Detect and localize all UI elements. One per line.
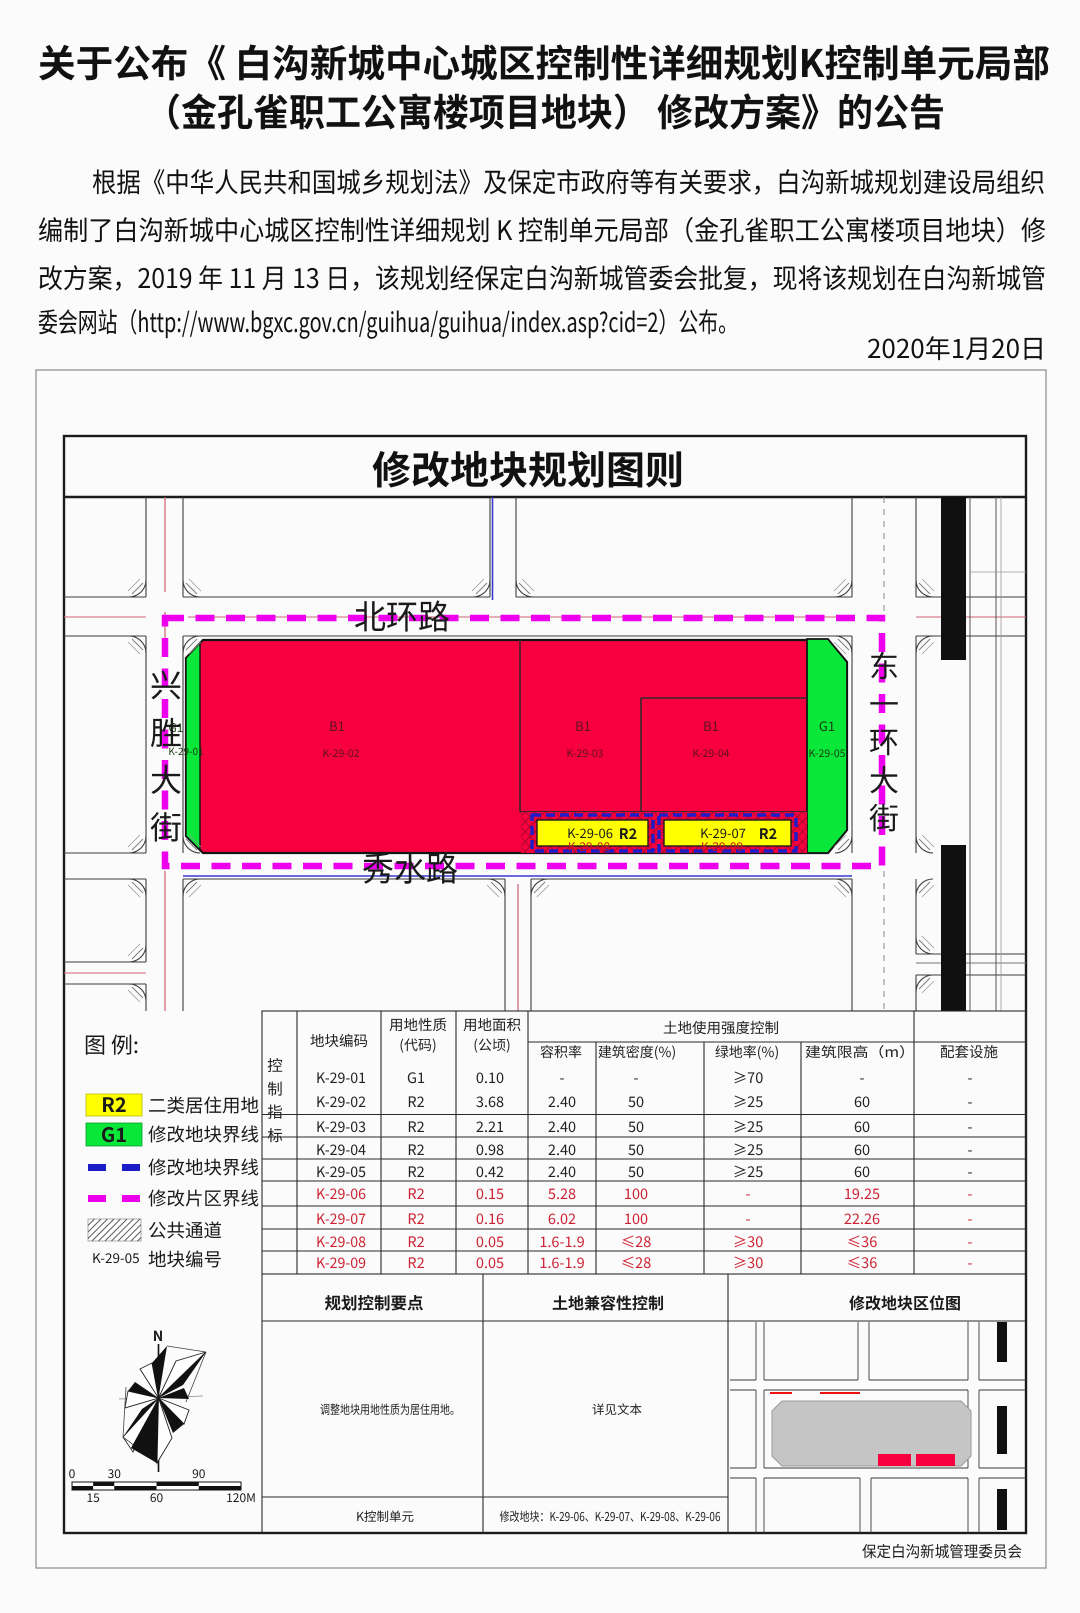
svg-text:K-29-05: K-29-05 [92,1247,140,1267]
svg-text:规划控制要点: 规划控制要点 [325,1290,424,1314]
svg-text:R2: R2 [407,1183,424,1204]
svg-text:N: N [153,1326,164,1346]
svg-text:建筑限高（m）: 建筑限高（m） [805,1042,915,1062]
svg-text:公共通道: 公共通道 [148,1217,222,1243]
svg-text:绿地率(%): 绿地率(%) [715,1042,779,1062]
svg-text:100: 100 [624,1208,648,1229]
svg-text:修改地块界线: 修改地块界线 [148,1154,259,1180]
svg-text:-: - [967,1067,972,1088]
svg-text:图 例:: 图 例: [84,1028,139,1060]
svg-text:K-29-08: K-29-08 [316,1231,366,1252]
svg-text:50: 50 [628,1139,644,1160]
svg-text:R2: R2 [101,1089,126,1118]
svg-text:（金孔雀职工公寓楼项目地块） 修改方案》的公告: （金孔雀职工公寓楼项目地块） 修改方案》的公告 [145,82,945,137]
svg-text:-: - [745,1208,750,1229]
svg-text:K-29-05: K-29-05 [316,1161,366,1182]
svg-text:50: 50 [628,1161,644,1182]
svg-text:R2: R2 [407,1161,424,1182]
svg-text:关于公布《 白沟新城中心城区控制性详细规划K控制单元局部: 关于公布《 白沟新城中心城区控制性详细规划K控制单元局部 [38,33,1050,88]
svg-text:-: - [967,1231,972,1252]
svg-text:≥25: ≥25 [733,1161,764,1182]
svg-text:0.42: 0.42 [476,1161,504,1182]
svg-text:120M: 120M [226,1489,256,1506]
svg-text:委会网站（http://www.bgxc.gov.cn/gu: 委会网站（http://www.bgxc.gov.cn/guihua/guihu… [38,301,738,340]
svg-text:2.40: 2.40 [548,1139,576,1160]
svg-text:K-29-09: K-29-09 [701,838,743,855]
svg-text:B1: B1 [329,716,345,735]
svg-text:地块编码: 地块编码 [310,1030,368,1051]
svg-text:K-29-05: K-29-05 [808,746,845,761]
svg-text:B1: B1 [575,716,591,735]
svg-text:≥25: ≥25 [733,1139,764,1160]
svg-text:0.15: 0.15 [476,1183,504,1204]
svg-text:-: - [633,1067,638,1088]
svg-text:(公顷): (公顷) [473,1035,510,1055]
svg-text:19.25: 19.25 [844,1183,880,1204]
svg-text:用地面积: 用地面积 [463,1014,521,1035]
svg-text:R2: R2 [407,1208,424,1229]
svg-text:≤36: ≤36 [847,1252,878,1273]
svg-text:R2: R2 [759,823,777,844]
svg-text:-: - [967,1252,972,1273]
svg-text:K-29-06: K-29-06 [316,1183,366,1204]
svg-text:街: 街 [869,794,899,838]
svg-text:G1: G1 [407,1067,425,1088]
svg-text:土地兼容性控制: 土地兼容性控制 [552,1290,664,1314]
svg-text:R2: R2 [407,1116,424,1137]
svg-text:保定白沟新城管理委员会: 保定白沟新城管理委员会 [862,1540,1022,1562]
svg-text:2020年1月20日: 2020年1月20日 [867,329,1046,366]
svg-text:配套设施: 配套设施 [940,1041,998,1062]
svg-text:K-29-02: K-29-02 [322,746,359,761]
svg-text:大: 大 [150,756,182,802]
svg-text:(代码): (代码) [399,1035,436,1055]
svg-text:0.98: 0.98 [476,1139,504,1160]
svg-text:15: 15 [86,1489,100,1506]
svg-text:-: - [559,1067,564,1088]
svg-text:0.16: 0.16 [476,1208,504,1229]
svg-text:22.26: 22.26 [844,1208,880,1229]
svg-text:容积率: 容积率 [540,1042,582,1062]
svg-text:R2: R2 [619,823,637,844]
svg-text:60: 60 [854,1161,870,1182]
svg-text:2.21: 2.21 [476,1116,504,1137]
svg-text:R2: R2 [407,1231,424,1252]
svg-text:≤28: ≤28 [621,1231,652,1252]
svg-text:6.02: 6.02 [548,1208,576,1229]
svg-text:K-29-09: K-29-09 [316,1252,366,1273]
svg-text:根据《中华人民共和国城乡规划法》及保定市政府等有关要求，白沟: 根据《中华人民共和国城乡规划法》及保定市政府等有关要求，白沟新城规划建设局组织 [92,161,1045,200]
svg-text:60: 60 [854,1139,870,1160]
svg-text:≥70: ≥70 [733,1067,764,1088]
svg-text:50: 50 [628,1091,644,1112]
svg-text:K-29-01: K-29-01 [316,1067,366,1088]
svg-text:用地性质: 用地性质 [389,1014,447,1035]
svg-text:≤36: ≤36 [847,1231,878,1252]
svg-text:详见文本: 详见文本 [592,1399,643,1418]
svg-text:K-29-04: K-29-04 [316,1139,366,1160]
svg-text:5.28: 5.28 [548,1183,576,1204]
svg-text:G1: G1 [101,1119,127,1148]
svg-text:-: - [967,1183,972,1204]
svg-text:60: 60 [854,1091,870,1112]
svg-text:胜: 胜 [150,708,182,754]
svg-text:G1: G1 [819,716,835,735]
svg-text:土地使用强度控制: 土地使用强度控制 [663,1017,779,1038]
svg-text:编制了白沟新城中心城区控制性详细规划 K 控制单元局部（金孔: 编制了白沟新城中心城区控制性详细规划 K 控制单元局部（金孔雀职工公寓楼项目地块… [38,209,1046,248]
svg-text:3.68: 3.68 [476,1091,504,1112]
svg-text:-: - [967,1116,972,1137]
svg-text:2.40: 2.40 [548,1161,576,1182]
svg-text:K-29-03: K-29-03 [316,1116,366,1137]
svg-text:0: 0 [69,1465,76,1482]
svg-text:90: 90 [192,1465,206,1482]
svg-text:0.10: 0.10 [476,1067,504,1088]
svg-text:B1: B1 [703,716,719,735]
svg-text:二类居住用地: 二类居住用地 [148,1092,259,1118]
svg-text:控: 控 [267,1054,283,1076]
svg-text:-: - [967,1161,972,1182]
svg-text:2.40: 2.40 [548,1116,576,1137]
svg-text:≤28: ≤28 [621,1252,652,1273]
svg-text:60: 60 [150,1489,164,1506]
svg-text:30: 30 [108,1465,122,1482]
svg-text:2.40: 2.40 [548,1091,576,1112]
svg-text:修改地块区位图: 修改地块区位图 [849,1290,961,1314]
svg-text:改方案，2019 年 11 月 13 日，该规划经保定白沟新: 改方案，2019 年 11 月 13 日，该规划经保定白沟新城管委会批复，现将该… [38,257,1046,296]
svg-text:-: - [967,1091,972,1112]
svg-text:制: 制 [267,1077,283,1099]
svg-text:100: 100 [624,1183,648,1204]
svg-text:-: - [745,1183,750,1204]
svg-text:北环路: 北环路 [354,590,450,639]
svg-text:兴: 兴 [150,661,182,707]
svg-text:-: - [859,1067,864,1088]
svg-text:0.05: 0.05 [476,1231,504,1252]
svg-text:≥30: ≥30 [733,1231,764,1252]
svg-text:0.05: 0.05 [476,1252,504,1273]
svg-text:-: - [967,1208,972,1229]
svg-text:K-29-04: K-29-04 [692,746,729,761]
svg-text:60: 60 [854,1116,870,1137]
svg-text:秀水路: 秀水路 [362,842,458,891]
svg-text:修改地块界线: 修改地块界线 [148,1121,259,1147]
svg-text:建筑密度(%): 建筑密度(%) [598,1042,676,1062]
svg-text:地块编号: 地块编号 [148,1246,222,1272]
svg-text:标: 标 [267,1124,283,1146]
svg-text:R2: R2 [407,1252,424,1273]
svg-text:50: 50 [628,1116,644,1137]
svg-text:K-29-07: K-29-07 [316,1208,366,1229]
svg-text:K-29-08: K-29-08 [568,838,611,855]
svg-text:R2: R2 [407,1139,424,1160]
svg-text:街: 街 [150,803,182,849]
svg-text:-: - [967,1139,972,1160]
svg-text:1.6-1.9: 1.6-1.9 [539,1252,584,1273]
svg-text:K控制单元: K控制单元 [356,1506,414,1525]
svg-text:K-29-03: K-29-03 [566,746,603,761]
svg-text:≥30: ≥30 [733,1252,764,1273]
svg-text:R2: R2 [407,1091,424,1112]
svg-text:K-29-02: K-29-02 [316,1091,366,1112]
svg-text:修改地块规划图则: 修改地块规划图则 [372,440,684,496]
svg-text:≥25: ≥25 [733,1116,764,1137]
svg-text:1.6-1.9: 1.6-1.9 [539,1231,584,1252]
svg-text:修改片区界线: 修改片区界线 [148,1185,259,1211]
svg-text:≥25: ≥25 [733,1091,764,1112]
svg-text:修改地块：K-29-06、K-29-07、K-29-08、K: 修改地块：K-29-06、K-29-07、K-29-08、K-29-06 [500,1506,721,1525]
svg-text:调整地块用地性质为居住用地。: 调整地块用地性质为居住用地。 [320,1399,460,1418]
svg-text:指: 指 [267,1101,283,1123]
